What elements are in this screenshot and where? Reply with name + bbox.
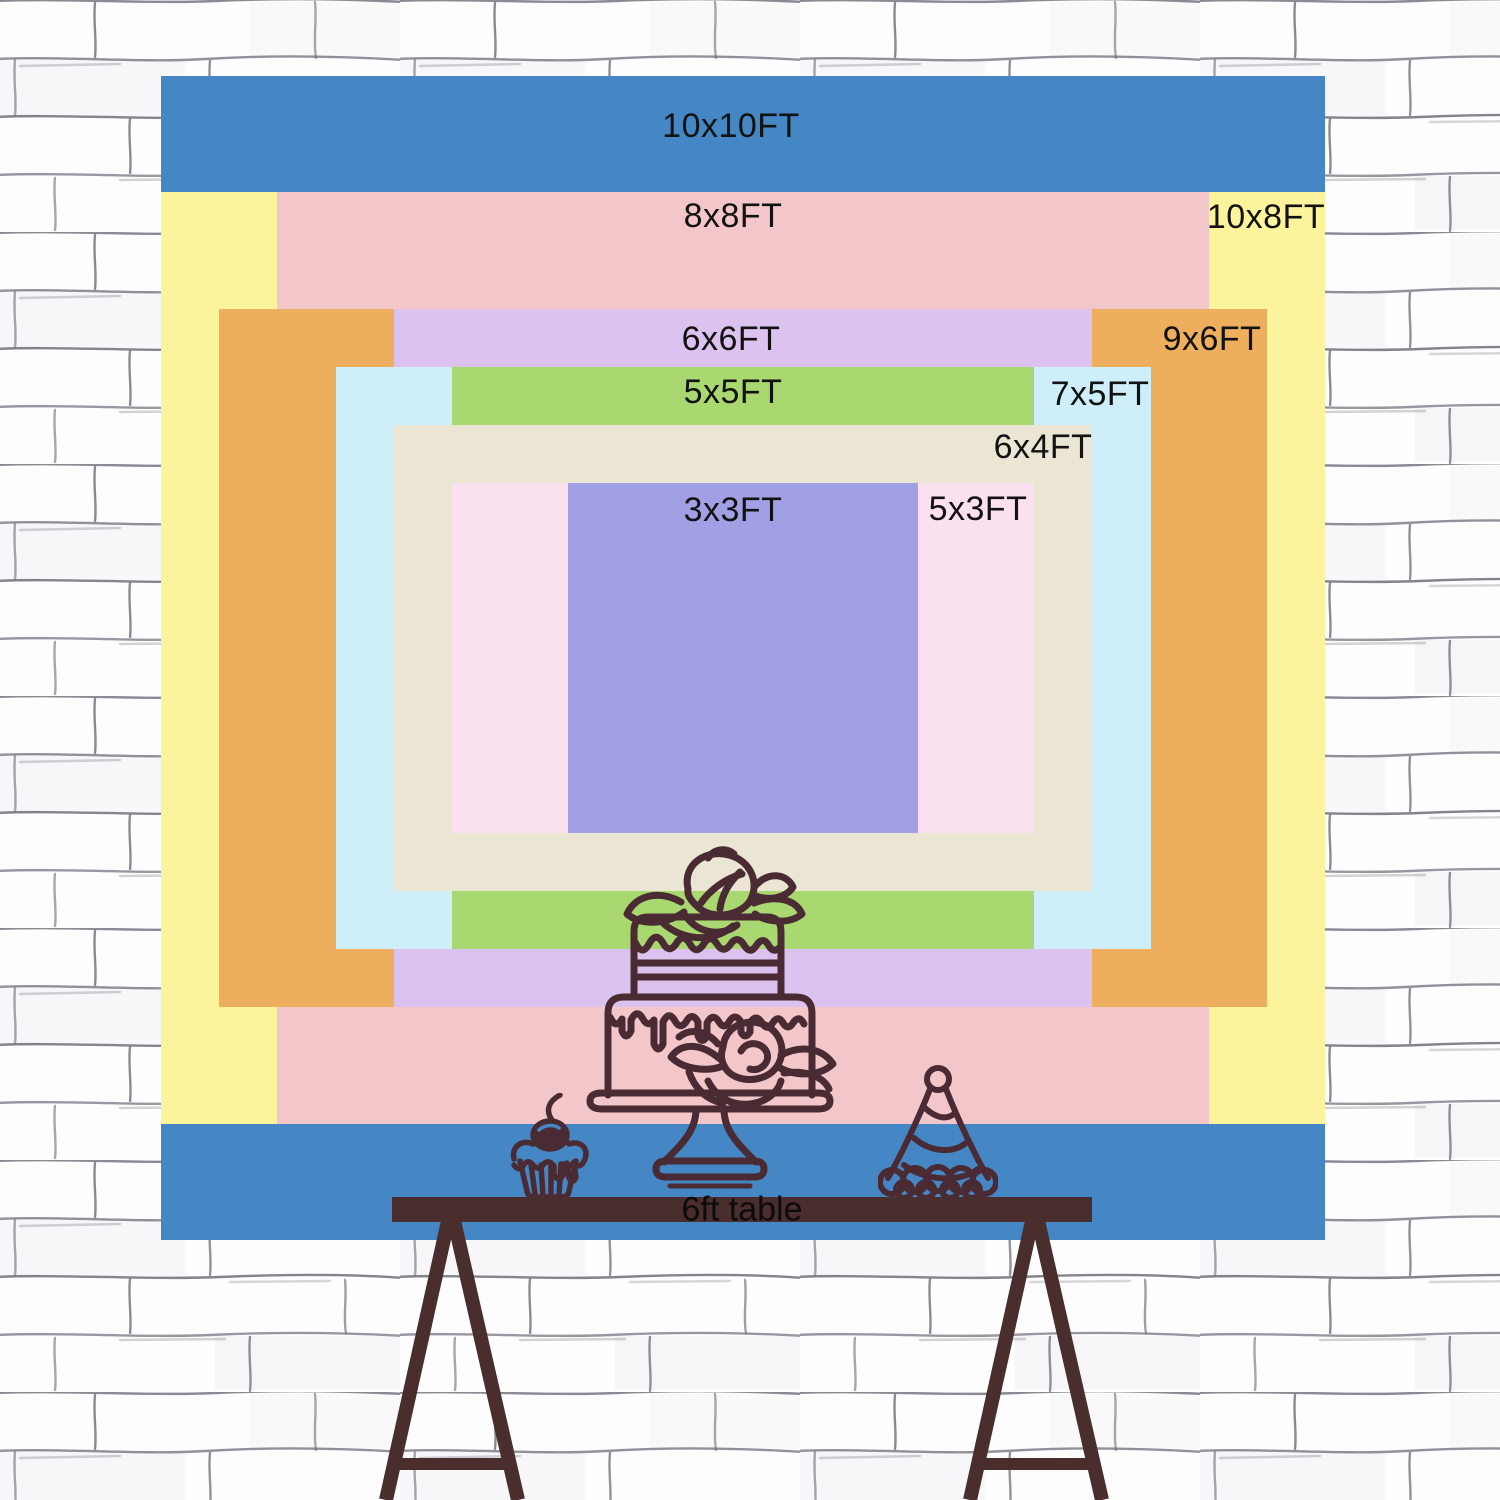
size-label-7x5ft: 7x5FT (1051, 377, 1150, 411)
party-hat-icon (878, 1062, 998, 1200)
size-label-5x5ft: 5x5FT (684, 375, 783, 409)
size-chart-graphic: 10x10FT 8x8FT 10x8FT 6x6FT 9x6FT 5x5FT 7… (0, 0, 1500, 1500)
size-label-5x3ft: 5x3FT (929, 492, 1028, 526)
table-legs (350, 1210, 1150, 1500)
size-rect-3x3ft (568, 483, 918, 833)
cupcake-icon (500, 1093, 600, 1203)
size-label-10x10ft: 10x10FT (662, 109, 800, 143)
size-label-6x6ft: 6x6FT (682, 322, 781, 356)
size-label-3x3ft: 3x3FT (684, 493, 783, 527)
size-label-9x6ft: 9x6FT (1163, 322, 1262, 356)
size-label-6x4ft: 6x4FT (994, 430, 1093, 464)
table-label: 6ft table (682, 1191, 803, 1230)
cake-icon (560, 845, 860, 1215)
size-label-10x8ft: 10x8FT (1207, 200, 1325, 234)
size-label-8x8ft: 8x8FT (684, 199, 783, 233)
